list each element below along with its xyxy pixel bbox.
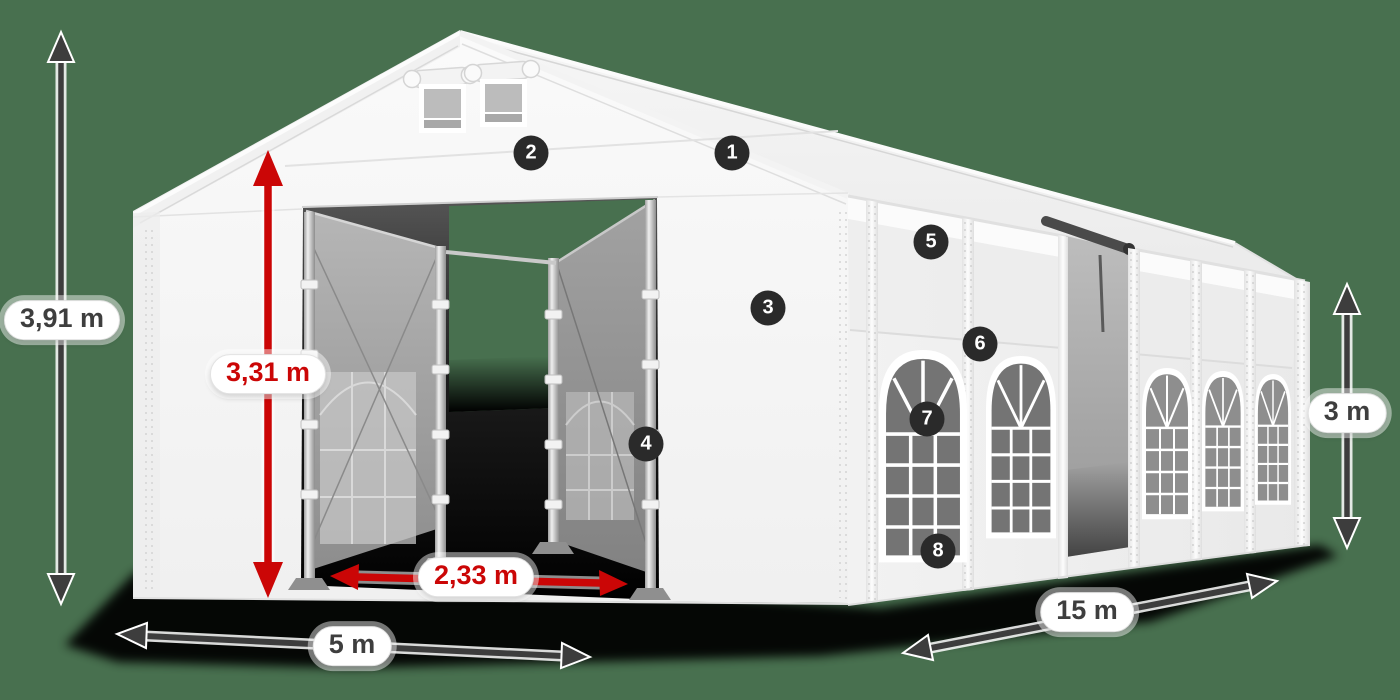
callout-badge-7[interactable]: 7: [910, 402, 945, 437]
callout-badge-4[interactable]: 4: [629, 427, 664, 462]
entrance-left-door-panel: [304, 211, 443, 572]
tent-dimensions-diagram: 3,91 m 3,31 m 2,33 m 5 m 15 m 3 m 1 2 3 …: [0, 0, 1400, 700]
dimension-label-side-length: 15 m: [1040, 592, 1134, 632]
tent-illustration: [0, 0, 1400, 700]
side-window: [879, 350, 967, 562]
side-window: [986, 356, 1056, 538]
callout-badge-5[interactable]: 5: [914, 225, 949, 260]
dimension-label-front-width: 5 m: [313, 626, 392, 666]
side-window: [1202, 371, 1244, 511]
callout-badge-3[interactable]: 3: [751, 291, 786, 326]
dimension-label-total-height: 3,91 m: [4, 300, 120, 340]
callout-badge-8[interactable]: 8: [921, 534, 956, 569]
callout-badge-2[interactable]: 2: [514, 136, 549, 171]
callout-badge-6[interactable]: 6: [963, 327, 998, 362]
dimension-label-entrance-width: 2,33 m: [418, 557, 534, 597]
dimension-label-entrance-height: 3,31 m: [210, 354, 326, 394]
callout-badge-1[interactable]: 1: [715, 136, 750, 171]
dimension-label-side-height: 3 m: [1308, 393, 1387, 433]
front-entrance: [288, 198, 671, 600]
side-window: [1142, 368, 1192, 519]
entrance-right-door-panel: [553, 200, 655, 575]
side-window: [1255, 374, 1291, 505]
